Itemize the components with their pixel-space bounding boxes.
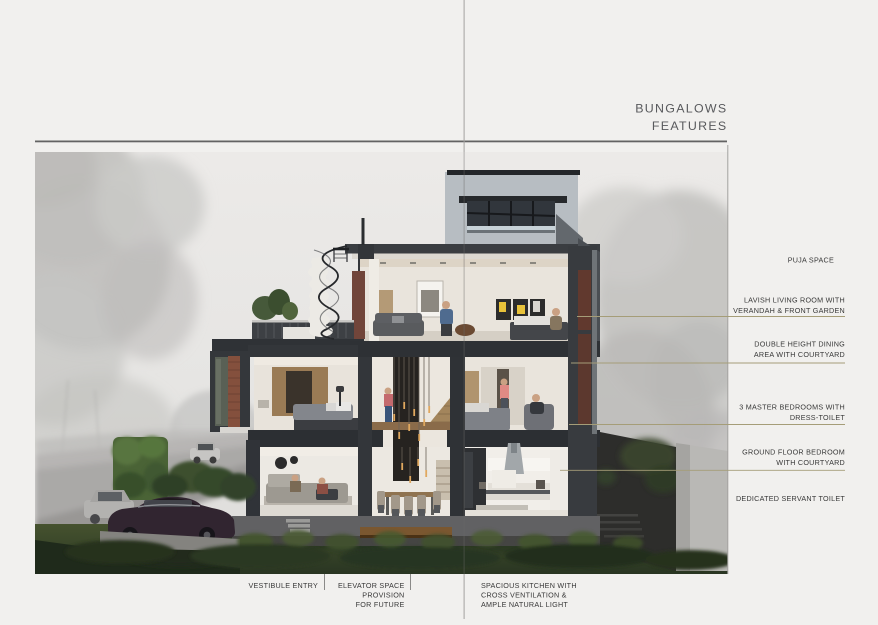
svg-text:WITH COURTYARD: WITH COURTYARD: [776, 458, 845, 467]
svg-text:GROUND FLOOR BEDROOM: GROUND FLOOR BEDROOM: [742, 448, 845, 457]
svg-text:FOR FUTURE: FOR FUTURE: [356, 600, 405, 609]
svg-text:AMPLE NATURAL LIGHT: AMPLE NATURAL LIGHT: [481, 600, 568, 609]
svg-text:LAVISH LIVING ROOM WITH: LAVISH LIVING ROOM WITH: [744, 295, 845, 304]
svg-text:DRESS-TOILET: DRESS-TOILET: [790, 413, 846, 422]
svg-text:CROSS VENTILATION &: CROSS VENTILATION &: [481, 590, 567, 599]
svg-text:VESTIBULE ENTRY: VESTIBULE ENTRY: [248, 581, 318, 590]
svg-text:PROVISION: PROVISION: [362, 590, 404, 599]
svg-text:ELEVATOR SPACE: ELEVATOR SPACE: [338, 581, 404, 590]
svg-text:FEATURES: FEATURES: [652, 119, 728, 133]
svg-text:SPACIOUS KITCHEN WITH: SPACIOUS KITCHEN WITH: [481, 581, 577, 590]
svg-text:DOUBLE HEIGHT DINING: DOUBLE HEIGHT DINING: [754, 340, 845, 349]
svg-text:BUNGALOWS: BUNGALOWS: [635, 102, 727, 116]
svg-text:VERANDAH & FRONT GARDEN: VERANDAH & FRONT GARDEN: [733, 306, 845, 315]
svg-text:AREA WITH COURTYARD: AREA WITH COURTYARD: [754, 350, 845, 359]
svg-text:DEDICATED SERVANT TOILET: DEDICATED SERVANT TOILET: [736, 494, 845, 503]
svg-text:PUJA SPACE: PUJA SPACE: [788, 256, 834, 265]
svg-text:3 MASTER BEDROOMS WITH: 3 MASTER BEDROOMS WITH: [739, 403, 845, 412]
